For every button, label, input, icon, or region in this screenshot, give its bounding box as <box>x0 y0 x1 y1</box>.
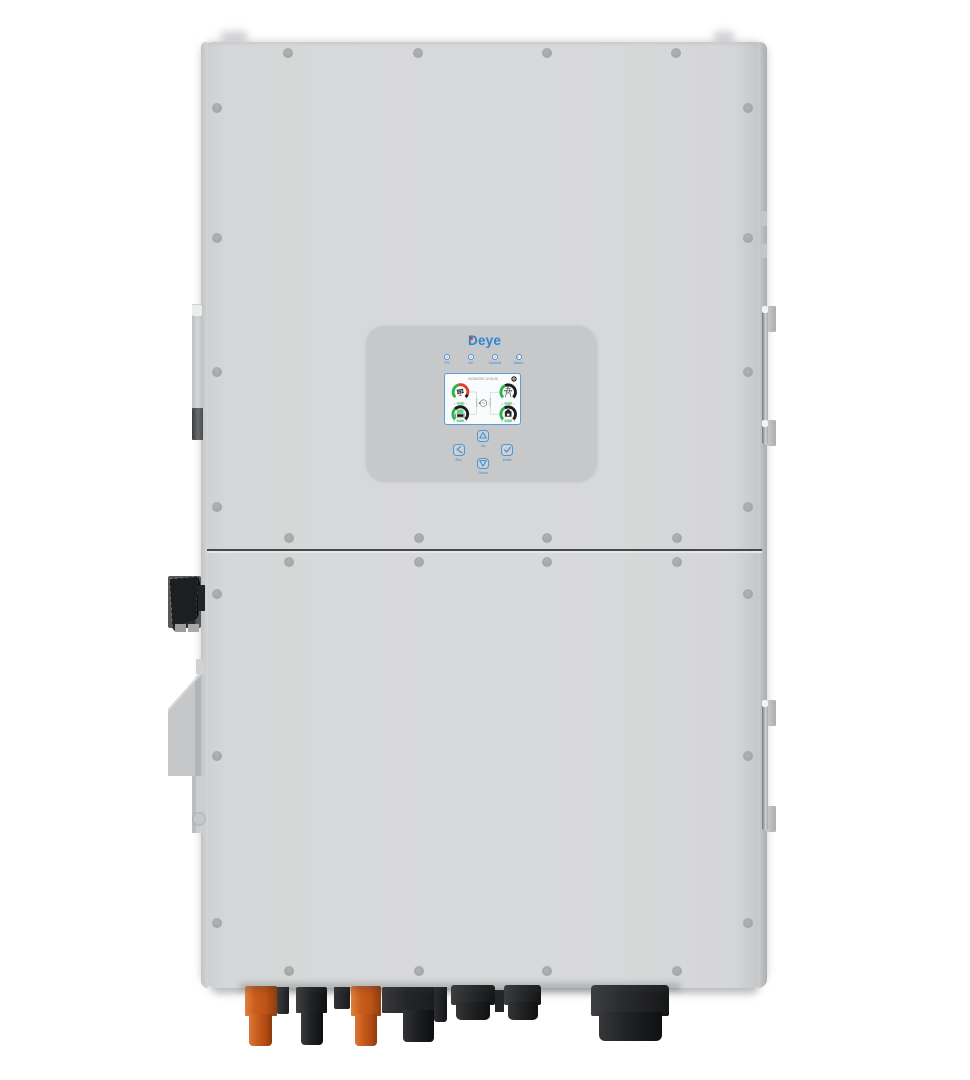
svg-text:5: 5 <box>514 404 515 406</box>
svg-text:0.0W: 0.0W <box>505 419 512 423</box>
svg-text:5: 5 <box>466 421 467 422</box>
svg-text:5: 5 <box>514 421 515 422</box>
svg-text:0: 0 <box>454 404 455 406</box>
svg-text:0.0W: 0.0W <box>457 419 464 423</box>
svg-text:0: 0 <box>502 404 503 406</box>
svg-text:0.0W: 0.0W <box>457 402 464 406</box>
svg-text:00/08/2019 12:34:46: 00/08/2019 12:34:46 <box>468 377 497 381</box>
svg-text:0: 0 <box>502 421 503 422</box>
svg-text:5: 5 <box>466 404 467 406</box>
svg-text:0: 0 <box>454 421 455 422</box>
svg-text:0.0W: 0.0W <box>505 402 512 406</box>
